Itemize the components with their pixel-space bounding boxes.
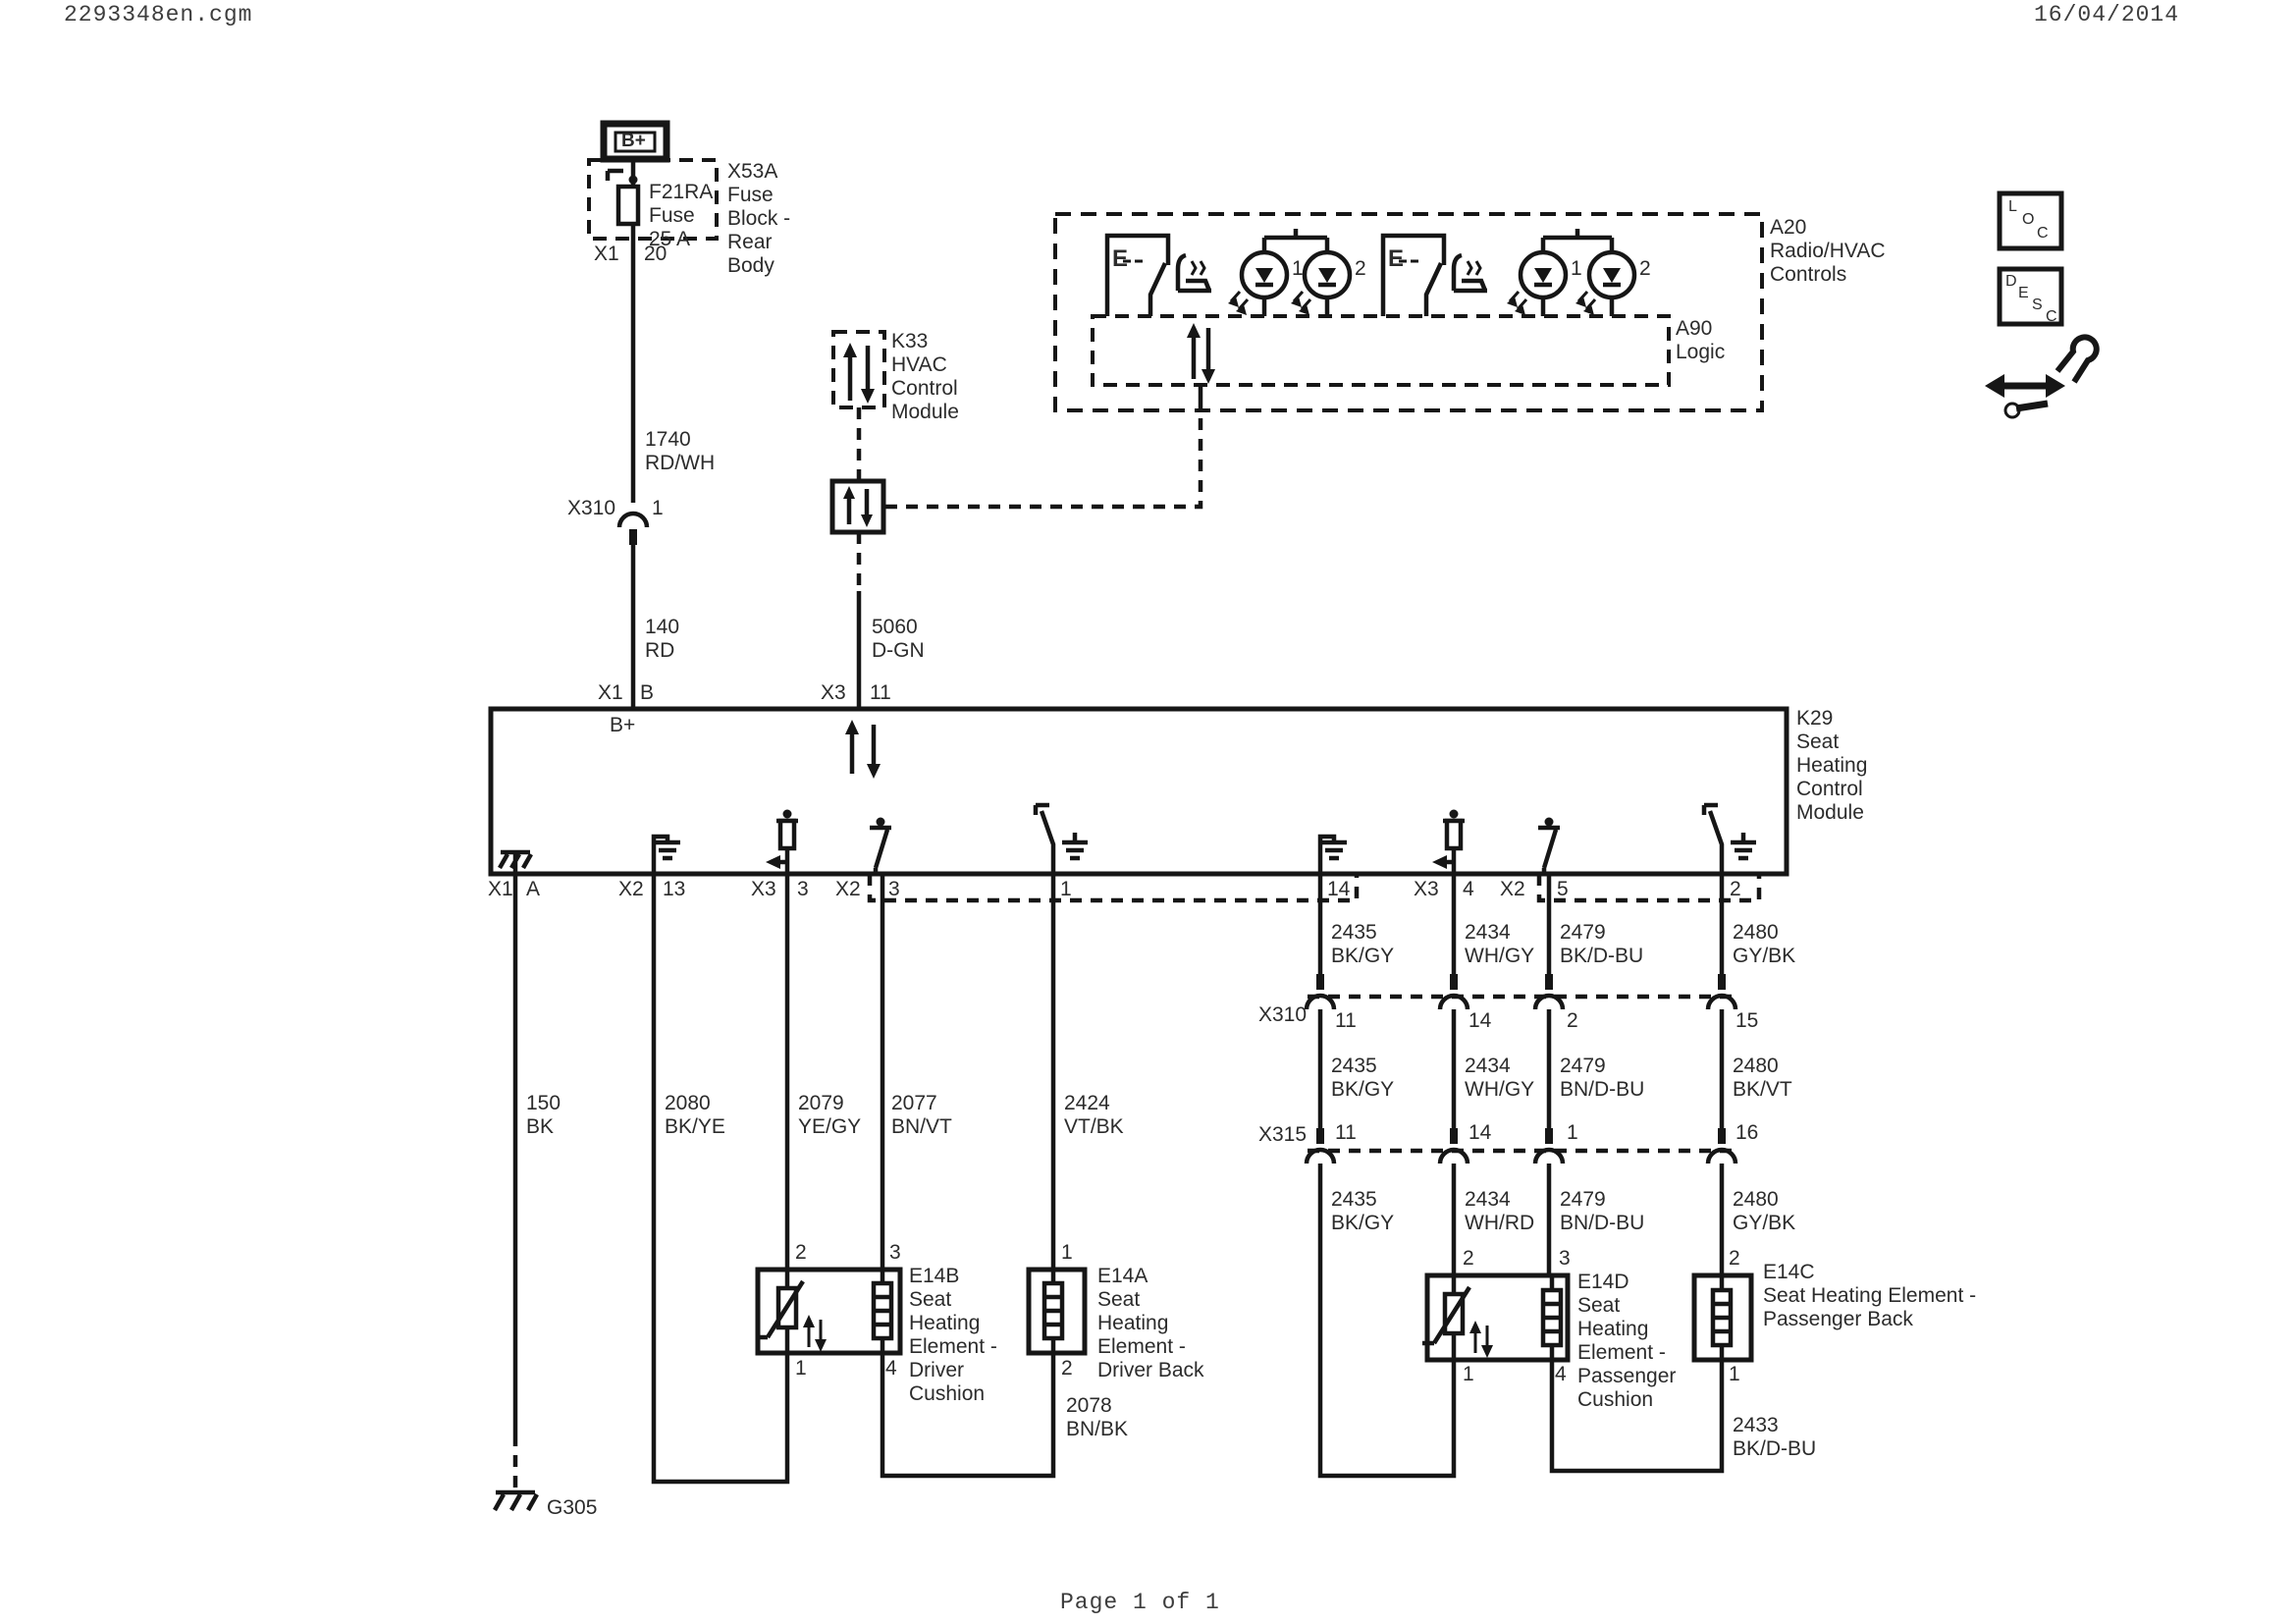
wire-label: 2479 BK/D-BU	[1560, 921, 1643, 968]
pin-label: X1	[594, 243, 619, 266]
switch-to-ground-icon	[1036, 805, 1088, 874]
wire-2080	[654, 874, 787, 1482]
loc-letter: C	[2037, 226, 2049, 242]
pin-label: 1	[1729, 1363, 1740, 1386]
x2-connector-group-line	[1539, 874, 1759, 900]
switch-to-ground-icon	[1704, 805, 1756, 874]
fuse-label: F21RA Fuse 25 A	[649, 181, 713, 251]
wire-label-2078: 2078 BN/BK	[1066, 1394, 1128, 1441]
switch-letter: E	[1388, 247, 1404, 271]
pin-label: 3	[1559, 1247, 1571, 1271]
pin-label: 4	[1463, 878, 1474, 901]
pin-label: 3	[889, 1241, 901, 1265]
fuse-block-label: X53A Fuse Block - Rear Body	[727, 160, 790, 278]
wire-label: 2479 BN/D-BU	[1560, 1188, 1644, 1235]
connector-label: X315	[1258, 1123, 1307, 1147]
wire-label-5060: 5060 D-GN	[872, 616, 925, 663]
heating-element-icon	[1543, 1290, 1561, 1345]
wire-label-140: 140 RD	[645, 616, 679, 663]
wire-label: 2434 WH/RD	[1465, 1188, 1534, 1235]
indicator-led-icon	[1228, 238, 1287, 316]
pin-label: 1	[1060, 878, 1072, 901]
inline-connector-icon	[1307, 974, 1334, 1009]
led-bar-1	[1264, 229, 1327, 238]
heating-element-icon	[874, 1283, 891, 1338]
sensor-feed-icon	[766, 810, 798, 875]
connector-pin-label: 15	[1735, 1009, 1758, 1033]
inline-connector-icon	[1708, 1128, 1735, 1164]
led-number: 2	[1355, 257, 1366, 281]
connector-label: X310	[567, 497, 615, 520]
pin-label: 5	[1557, 878, 1569, 901]
connector-pin-label: 2	[1567, 1009, 1578, 1033]
pin-label: X3	[1414, 878, 1439, 901]
switch-letter: E	[1112, 247, 1128, 271]
connector-pin-label: 1	[1567, 1121, 1578, 1145]
battery-terminal-label: B+	[621, 130, 646, 153]
fuse-icon	[618, 187, 638, 224]
led-number: 1	[1571, 257, 1582, 281]
pin-label: 1	[795, 1357, 807, 1380]
switch-icon	[1538, 818, 1560, 875]
inline-connector-icon	[1440, 974, 1468, 1009]
k29-bplus-label: B+	[610, 714, 635, 737]
a90-logic-box	[1093, 316, 1669, 385]
inline-connector-icon	[1307, 1128, 1334, 1164]
pin-label: 1	[1061, 1241, 1073, 1265]
e14d-label: E14D Seat Heating Element - Passenger Cu…	[1577, 1271, 1676, 1412]
wire-label: 2479 BN/D-BU	[1560, 1055, 1644, 1102]
page-indicator: Page 1 of 1	[1060, 1591, 1220, 1614]
desc-letter: E	[2018, 286, 2029, 301]
serial-data-wire-a20	[885, 412, 1201, 507]
e14c-label: E14C Seat Heating Element - Passenger Ba…	[1763, 1261, 1976, 1331]
connector-pin-label: 14	[1468, 1009, 1491, 1033]
thermistor-icon	[1422, 1287, 1493, 1358]
a20-label: A20 Radio/HVAC Controls	[1770, 216, 1886, 287]
earth-ground-icon	[1320, 837, 1347, 874]
filename: 2293348en.cgm	[64, 3, 252, 27]
connector-pin-label: 1	[652, 497, 664, 520]
inline-connector-icon	[1440, 1128, 1468, 1164]
pin-label: 2	[1730, 878, 1741, 901]
wire-label-2080: 2080 BK/YE	[665, 1092, 725, 1139]
pin-label: 2	[795, 1241, 807, 1265]
x310-inline-connector-icon	[619, 514, 647, 545]
wire-label: 2434 WH/GY	[1465, 921, 1534, 968]
desc-letter: S	[2032, 298, 2043, 313]
pin-label: X3	[751, 878, 776, 901]
led-number: 2	[1639, 257, 1651, 281]
k29-label: K29 Seat Heating Control Module	[1796, 707, 1867, 825]
signal-ground-icon	[500, 852, 531, 874]
pin-label: X1	[598, 681, 623, 705]
wire-label: 2435 BK/GY	[1331, 921, 1394, 968]
led-bar-2	[1543, 229, 1612, 238]
pin-label: 13	[663, 878, 685, 901]
pin-label: 2	[1729, 1247, 1740, 1271]
earth-ground-icon	[654, 837, 680, 874]
indicator-led-icon	[1507, 238, 1566, 316]
pin-label: X2	[618, 878, 644, 901]
wire-label-2433: 2433 BK/D-BU	[1733, 1414, 1816, 1461]
connector-pin-label: 14	[1468, 1121, 1491, 1145]
e14b-label: E14B Seat Heating Element - Driver Cushi…	[909, 1265, 997, 1406]
wire-label: 2435 BK/GY	[1331, 1188, 1394, 1235]
wire-label: 2480 BK/VT	[1733, 1055, 1792, 1102]
a20-box	[1055, 214, 1762, 410]
led-number: 1	[1292, 257, 1304, 281]
pin-label: X2	[1500, 878, 1525, 901]
desc-letter: C	[2046, 309, 2057, 325]
indicator-led-icon	[1575, 238, 1634, 316]
wire-label-150: 150 BK	[526, 1092, 561, 1139]
loc-letter: O	[2022, 212, 2034, 228]
serial-data-arrows-icon	[845, 720, 881, 779]
k29-module-box	[491, 709, 1787, 874]
switch-icon	[870, 818, 891, 875]
connector-pin-label: 11	[1335, 1121, 1357, 1145]
pin-label: 11	[870, 681, 891, 705]
pin-label: 3	[797, 878, 809, 901]
wiring-diagram-page: 2293348en.cgm 16/04/2014 Page 1 of 1 B+ …	[0, 0, 2296, 1624]
connector-pin-label: 11	[1335, 1009, 1357, 1033]
wire-label-2079: 2079 YE/GY	[798, 1092, 861, 1139]
g305-ground-icon	[495, 1492, 537, 1510]
pin-label: A	[526, 878, 540, 901]
k33-module-box	[833, 332, 884, 407]
harness-repair-icon[interactable]	[1985, 337, 2097, 417]
pin-label: 2	[1061, 1357, 1073, 1380]
heating-element-icon	[1044, 1283, 1062, 1338]
wire-label: 2435 BK/GY	[1331, 1055, 1394, 1102]
desc-letter: D	[2005, 274, 2017, 290]
sensor-feed-icon	[1432, 810, 1465, 875]
wire-label: 2480 GY/BK	[1733, 921, 1795, 968]
pin-label: 1	[1463, 1363, 1474, 1386]
thermistor-icon	[756, 1281, 827, 1352]
serial-junction-box	[832, 481, 883, 532]
wire-label-1740: 1740 RD/WH	[645, 428, 715, 475]
a90-label: A90 Logic	[1676, 317, 1725, 364]
pin-label: 14	[1327, 878, 1350, 901]
pin-label: 20	[644, 243, 667, 266]
pin-label: B	[640, 681, 654, 705]
pin-label: 2	[1463, 1247, 1474, 1271]
date: 16/04/2014	[2034, 3, 2179, 27]
wire-label-2424: 2424 VT/BK	[1064, 1092, 1124, 1139]
pin-label: X1	[488, 878, 513, 901]
loc-letter: L	[2008, 199, 2017, 215]
x2-connector-group-line	[870, 874, 1357, 900]
wire-label: 2434 WH/GY	[1465, 1055, 1534, 1102]
heating-element-icon	[1713, 1290, 1731, 1345]
wire-label-2077: 2077 BN/VT	[891, 1092, 952, 1139]
g305-label: G305	[547, 1496, 597, 1520]
connector-label: X310	[1258, 1003, 1307, 1027]
connector-pin-label: 16	[1735, 1121, 1758, 1145]
pin-label: X3	[821, 681, 846, 705]
pin-label: 3	[888, 878, 900, 901]
inline-connector-icon	[1535, 974, 1563, 1009]
wire-label: 2480 GY/BK	[1733, 1188, 1795, 1235]
pin-label: X2	[835, 878, 861, 901]
seat-heater-icon	[1454, 255, 1487, 291]
pin-label: 4	[885, 1357, 897, 1380]
inline-connector-icon	[1535, 1128, 1563, 1164]
k33-label: K33 HVAC Control Module	[891, 330, 959, 424]
e14a-label: E14A Seat Heating Element - Driver Back	[1097, 1265, 1204, 1382]
inline-connector-icon	[1708, 974, 1735, 1009]
seat-heater-icon	[1178, 255, 1211, 291]
pin-label: 4	[1555, 1363, 1567, 1386]
